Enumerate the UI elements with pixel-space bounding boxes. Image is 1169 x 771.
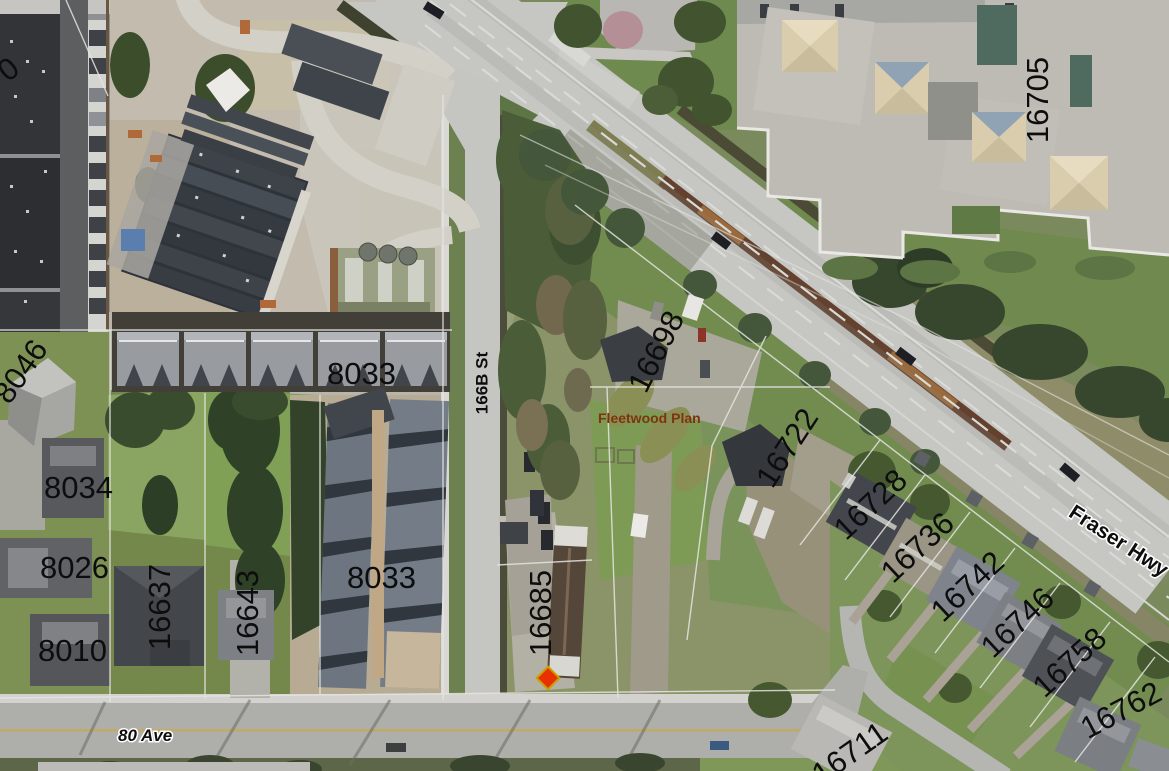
svg-text:80 Ave: 80 Ave bbox=[118, 726, 172, 745]
svg-text:16643: 16643 bbox=[230, 570, 265, 656]
svg-text:16637: 16637 bbox=[142, 564, 177, 650]
svg-text:8034: 8034 bbox=[44, 470, 113, 505]
svg-text:16685: 16685 bbox=[523, 570, 558, 656]
svg-text:8026: 8026 bbox=[40, 550, 109, 585]
svg-text:Fleetwood Plan: Fleetwood Plan bbox=[598, 410, 701, 426]
svg-text:166B St: 166B St bbox=[472, 351, 491, 414]
svg-text:8033: 8033 bbox=[347, 560, 416, 595]
svg-text:8033: 8033 bbox=[327, 356, 396, 391]
svg-text:8010: 8010 bbox=[38, 633, 107, 668]
svg-text:16705: 16705 bbox=[1020, 57, 1055, 143]
